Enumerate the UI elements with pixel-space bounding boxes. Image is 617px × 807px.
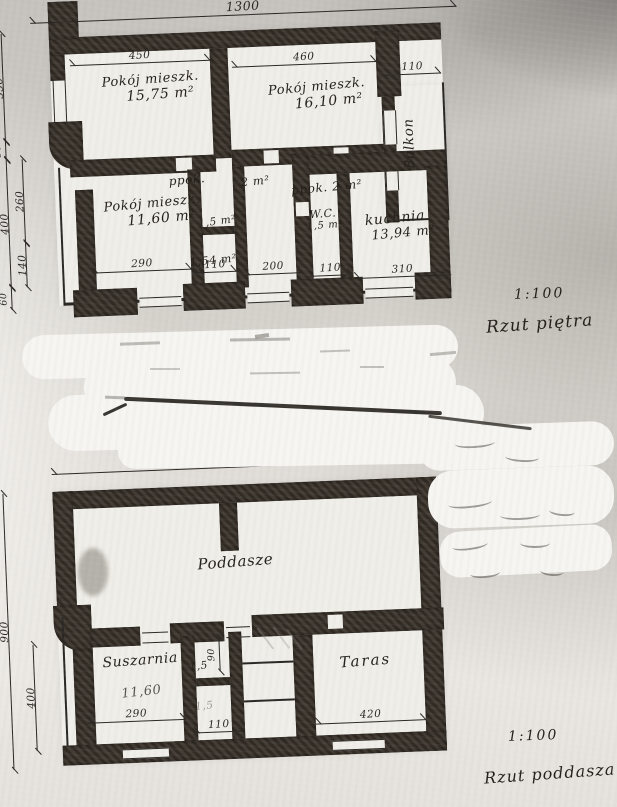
window [365, 287, 413, 299]
dimension-total-width: 1300 [30, 6, 456, 24]
wall-pillar [291, 277, 364, 307]
dimension-left-260: 260 [22, 159, 26, 243]
wall [90, 627, 141, 648]
erased-mark [105, 396, 125, 400]
window [383, 110, 397, 144]
room-label-wc: W.C. 1,5 m² [305, 206, 341, 232]
floor-plan: 1300 450 460 110 290 110 200 110 310 350… [22, 0, 486, 329]
erased-mark [360, 366, 384, 368]
faint-scribble [520, 538, 550, 548]
door-opening [264, 150, 280, 164]
attic-plan-scale: 1:100 [508, 727, 559, 745]
dimension-left-140: 140 [25, 243, 28, 287]
wall [219, 503, 239, 552]
wall [50, 55, 66, 82]
room-label-small1: 1,5 [189, 659, 209, 673]
scanned-floor-plan-page: 1300 450 460 110 290 110 200 110 310 350… [0, 0, 617, 807]
floor-plan-scale: 1:100 [514, 285, 565, 303]
whiteout-blob [439, 524, 613, 579]
erased-mark [150, 368, 180, 370]
window [142, 631, 168, 643]
dimension-left-400: 400 [6, 160, 12, 288]
dimension-left-60: 60 [11, 288, 13, 310]
wall-pillar [183, 281, 246, 310]
room-label-ppok1-area: 2 m² [240, 173, 270, 190]
scan-stain [78, 548, 108, 596]
attic-plan-caption: Rzut poddasza [483, 759, 615, 787]
dimension-left-400: 400 [32, 645, 37, 751]
wall [196, 677, 230, 686]
window [247, 292, 289, 304]
dimension-left-350: 350 [1, 34, 6, 142]
dimension-left-900: 900 [2, 494, 14, 770]
floor-plan-caption: Rzut piętra [485, 310, 594, 337]
whiteout-blob [118, 429, 467, 469]
door-opening [328, 614, 344, 629]
window [123, 748, 169, 760]
window [139, 296, 181, 308]
window [53, 80, 68, 121]
wall-pillar [73, 288, 138, 318]
room-label-small2: 1,5 [194, 699, 214, 713]
window [333, 739, 385, 751]
attic-plan: 1100 900 400 90 290 110 420 Poddasze Sus… [21, 443, 487, 807]
